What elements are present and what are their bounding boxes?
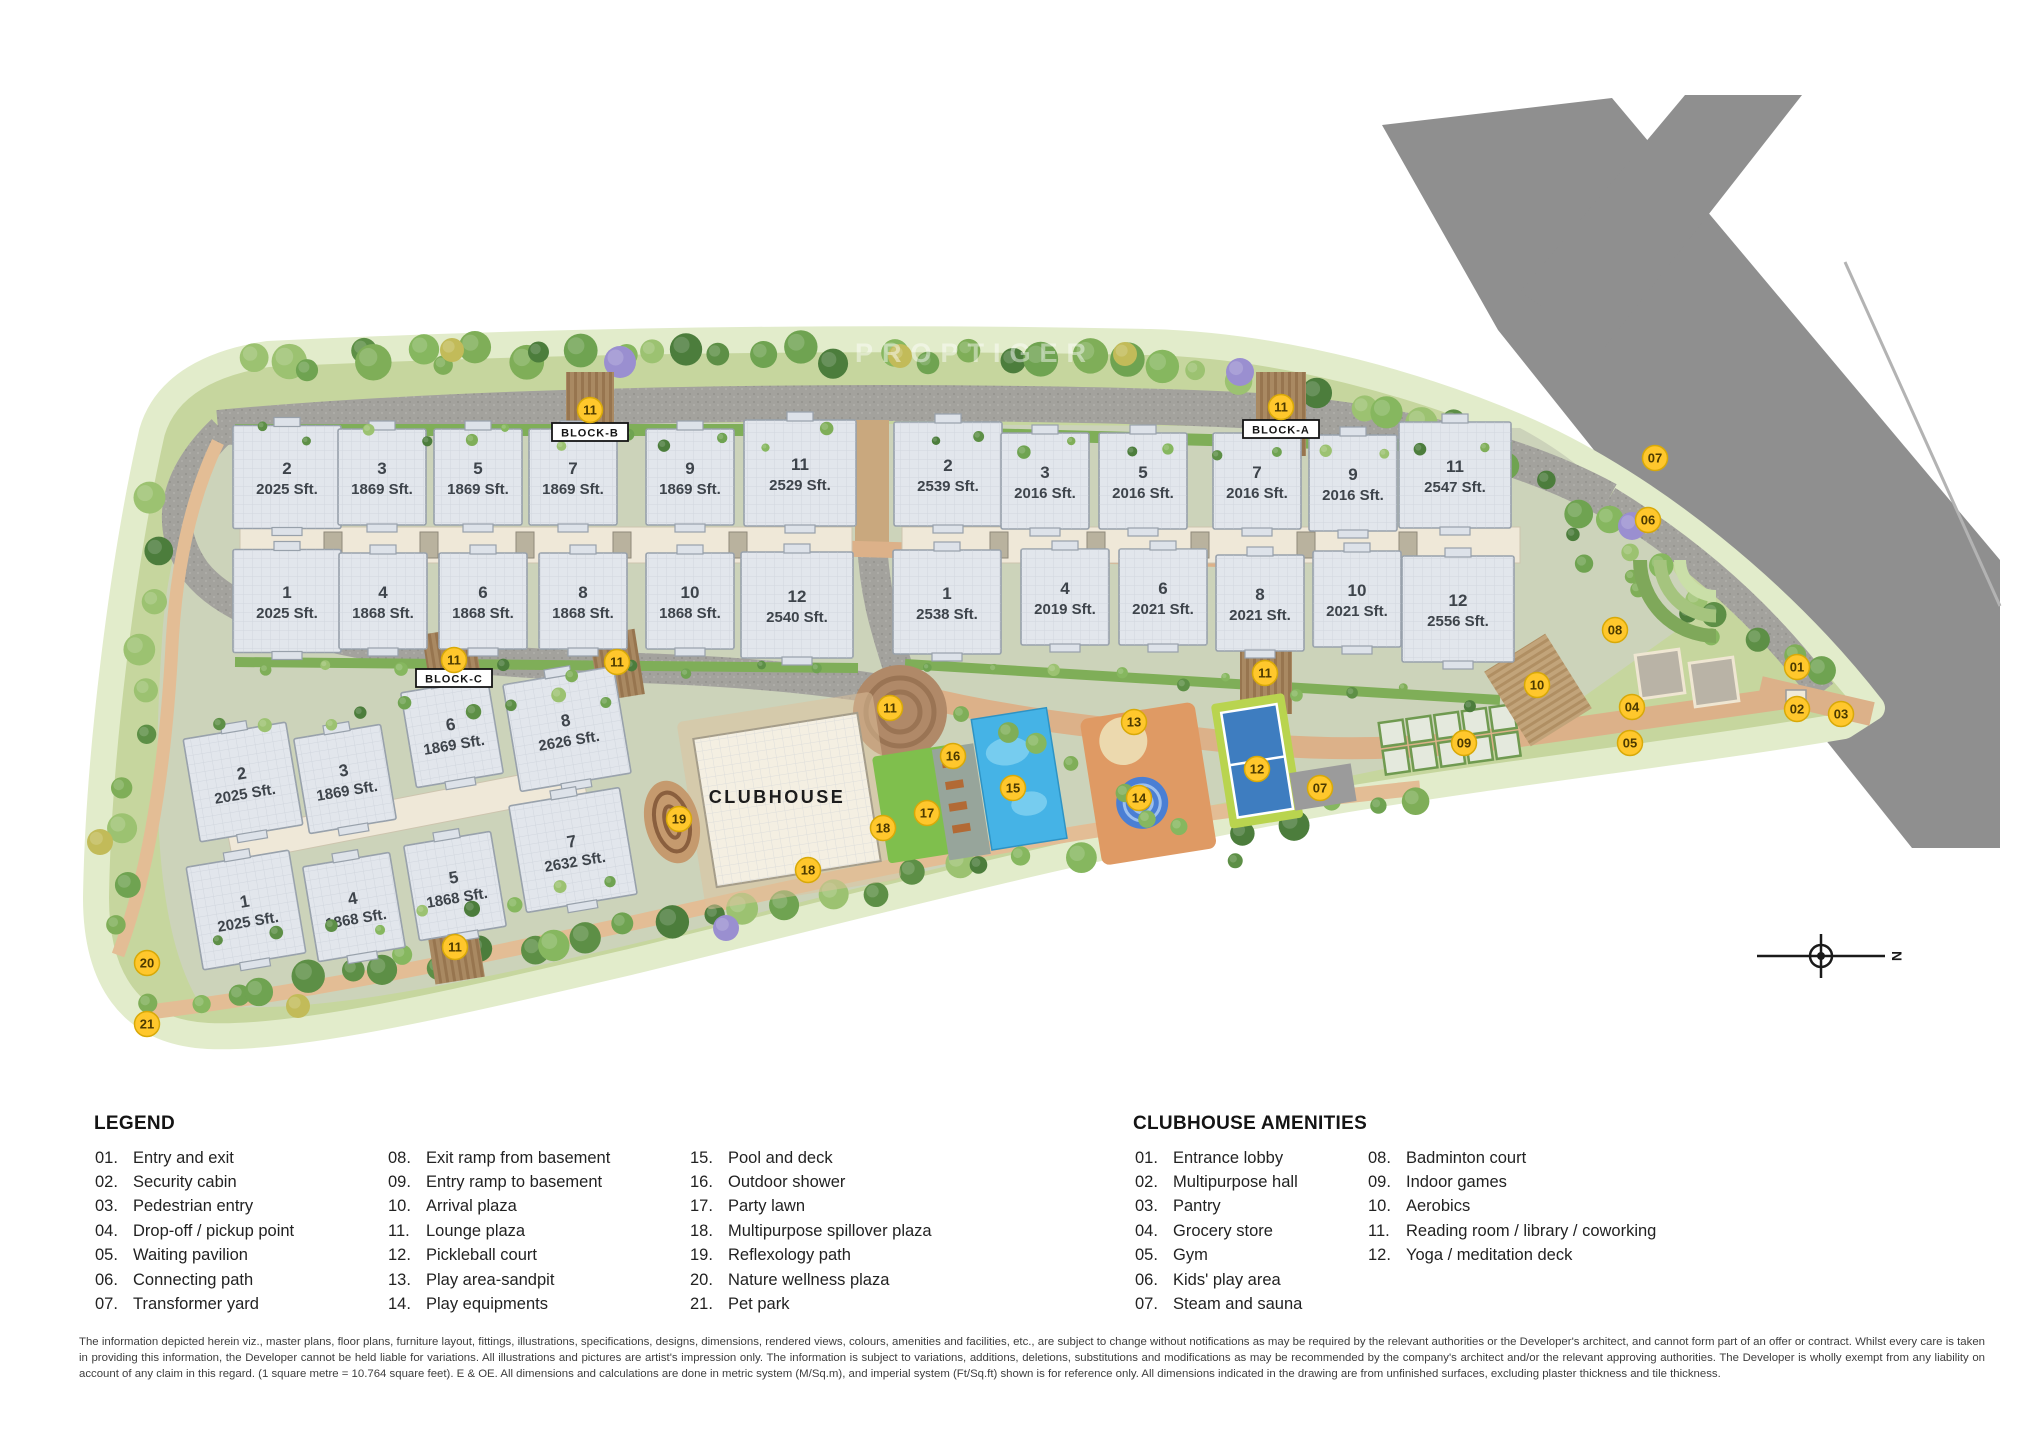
svg-text:16: 16 xyxy=(946,749,960,764)
svg-text:4: 4 xyxy=(378,583,388,602)
legend-item-05: 05.Waiting pavilion xyxy=(95,1244,294,1268)
svg-text:06: 06 xyxy=(1641,513,1655,528)
building-block_a-5: 52016 Sft. xyxy=(1099,425,1187,536)
svg-text:5: 5 xyxy=(473,459,482,478)
legend-item-13: 13.Play area-sandpit xyxy=(388,1268,610,1292)
site-plan: 22025 Sft.31869 Sft.51869 Sft.71869 Sft.… xyxy=(0,0,2025,1432)
marker-07: 07 xyxy=(1308,776,1333,801)
legend-item-09: 09.Entry ramp to basement xyxy=(388,1170,610,1194)
legend-item-04: 04.Grocery store xyxy=(1135,1219,1302,1243)
building-block_a-3: 32016 Sft. xyxy=(1001,425,1089,536)
legend-item-04: 04.Drop-off / pickup point xyxy=(95,1219,294,1243)
svg-text:7: 7 xyxy=(568,459,577,478)
plaza-tile-1 xyxy=(1635,649,1685,699)
svg-text:1869 Sft.: 1869 Sft. xyxy=(351,481,413,498)
legend-item-21: 21.Pet park xyxy=(690,1292,932,1316)
svg-text:04: 04 xyxy=(1625,700,1640,715)
marker-19: 19 xyxy=(667,807,692,832)
marker-17: 17 xyxy=(915,801,940,826)
svg-text:11: 11 xyxy=(610,655,624,670)
svg-text:2016 Sft.: 2016 Sft. xyxy=(1322,487,1384,504)
building-block_b-2: 22025 Sft. xyxy=(233,418,341,536)
svg-text:12: 12 xyxy=(1250,762,1264,777)
legend-item-10: 10.Arrival plaza xyxy=(388,1195,610,1219)
marker-13: 13 xyxy=(1122,710,1147,735)
building-block_b-4: 41868 Sft. xyxy=(339,545,427,656)
compass-north-label: N xyxy=(1889,951,1905,961)
svg-text:09: 09 xyxy=(1457,736,1471,751)
marker-15: 15 xyxy=(1001,776,1026,801)
legend-column-1: 01.Entry and exit02.Security cabin03.Ped… xyxy=(95,1146,294,1317)
svg-text:14: 14 xyxy=(1132,791,1147,806)
building-block_a-6: 62021 Sft. xyxy=(1119,541,1207,652)
svg-text:3: 3 xyxy=(1040,463,1049,482)
marker-03: 03 xyxy=(1829,702,1854,727)
svg-text:9: 9 xyxy=(1348,465,1357,484)
legend-item-08: 08.Exit ramp from basement xyxy=(388,1146,610,1170)
svg-text:1: 1 xyxy=(942,584,951,603)
clubhouse-amenities-column-1: 01.Entrance lobby02.Multipurpose hall03.… xyxy=(1135,1146,1302,1317)
legend-item-06: 06.Kids' play area xyxy=(1135,1268,1302,1292)
marker-11: 11 xyxy=(442,648,467,673)
legend-column-2: 08.Exit ramp from basement09.Entry ramp … xyxy=(388,1146,610,1317)
svg-text:15: 15 xyxy=(1006,781,1020,796)
building-block_b-10: 101868 Sft. xyxy=(646,545,734,656)
legend-item-14: 14.Play equipments xyxy=(388,1292,610,1316)
legend-item-10: 10.Aerobics xyxy=(1368,1195,1656,1219)
svg-text:13: 13 xyxy=(1127,715,1141,730)
marker-11: 11 xyxy=(605,650,630,675)
svg-text:10: 10 xyxy=(681,583,700,602)
svg-text:8: 8 xyxy=(1255,585,1264,604)
svg-text:03: 03 xyxy=(1834,707,1848,722)
building-block_a-11: 112547 Sft. xyxy=(1399,414,1511,535)
legend-item-03: 03.Pantry xyxy=(1135,1195,1302,1219)
svg-text:11: 11 xyxy=(448,940,462,955)
svg-text:02: 02 xyxy=(1790,702,1804,717)
svg-text:1868 Sft.: 1868 Sft. xyxy=(352,605,414,622)
svg-text:9: 9 xyxy=(685,459,694,478)
legend-item-01: 01.Entry and exit xyxy=(95,1146,294,1170)
building-block_a-10: 102021 Sft. xyxy=(1313,543,1401,654)
svg-text:2538 Sft.: 2538 Sft. xyxy=(916,606,978,623)
legend-item-20: 20.Nature wellness plaza xyxy=(690,1268,932,1292)
svg-text:2539 Sft.: 2539 Sft. xyxy=(917,478,979,495)
marker-04: 04 xyxy=(1620,695,1645,720)
legend-item-19: 19.Reflexology path xyxy=(690,1244,932,1268)
svg-text:2025 Sft.: 2025 Sft. xyxy=(256,481,318,498)
svg-text:2547 Sft.: 2547 Sft. xyxy=(1424,479,1486,496)
svg-text:18: 18 xyxy=(876,821,890,836)
marker-01: 01 xyxy=(1785,655,1810,680)
legend-item-11: 11.Lounge plaza xyxy=(388,1219,610,1243)
svg-text:11: 11 xyxy=(1446,457,1464,476)
svg-text:2556 Sft.: 2556 Sft. xyxy=(1427,613,1489,630)
marker-11: 11 xyxy=(878,696,903,721)
svg-text:BLOCK-C: BLOCK-C xyxy=(425,674,483,686)
legend-item-12: 12.Yoga / meditation deck xyxy=(1368,1244,1656,1268)
disclaimer-text: The information depicted herein viz., ma… xyxy=(79,1335,1985,1383)
watermark: PROPTIGER xyxy=(855,338,1095,368)
legend-item-11: 11.Reading room / library / coworking xyxy=(1368,1219,1656,1243)
marker-11: 11 xyxy=(1269,395,1294,420)
building-block_b-12: 122540 Sft. xyxy=(741,544,853,665)
svg-text:2016 Sft.: 2016 Sft. xyxy=(1014,485,1076,502)
legend-item-07: 07.Steam and sauna xyxy=(1135,1292,1302,1316)
marker-20: 20 xyxy=(135,951,160,976)
svg-text:10: 10 xyxy=(1530,678,1544,693)
building-block_a-9: 92016 Sft. xyxy=(1309,427,1397,538)
svg-text:6: 6 xyxy=(478,583,487,602)
svg-text:19: 19 xyxy=(672,812,686,827)
legend-item-15: 15.Pool and deck xyxy=(690,1146,932,1170)
svg-text:12: 12 xyxy=(788,587,807,606)
svg-text:11: 11 xyxy=(883,701,897,716)
marker-14: 14 xyxy=(1127,786,1152,811)
legend-title: LEGEND xyxy=(94,1113,175,1135)
svg-text:07: 07 xyxy=(1648,451,1662,466)
marker-08: 08 xyxy=(1603,618,1628,643)
svg-text:2021 Sft.: 2021 Sft. xyxy=(1132,601,1194,618)
svg-text:2025 Sft.: 2025 Sft. xyxy=(256,605,318,622)
legend-item-06: 06.Connecting path xyxy=(95,1268,294,1292)
svg-text:2019 Sft.: 2019 Sft. xyxy=(1034,601,1096,618)
building-block_b-5: 51869 Sft. xyxy=(434,421,522,532)
marker-09: 09 xyxy=(1452,731,1477,756)
legend-item-02: 02.Security cabin xyxy=(95,1170,294,1194)
svg-text:7: 7 xyxy=(1252,463,1261,482)
building-block_a-12: 122556 Sft. xyxy=(1402,548,1514,669)
svg-text:1868 Sft.: 1868 Sft. xyxy=(659,605,721,622)
svg-text:BLOCK-A: BLOCK-A xyxy=(1252,425,1310,437)
marker-10: 10 xyxy=(1525,673,1550,698)
block-sign-block-a: BLOCK-A xyxy=(1243,420,1319,438)
svg-text:BLOCK-B: BLOCK-B xyxy=(561,428,619,440)
svg-text:1869 Sft.: 1869 Sft. xyxy=(447,481,509,498)
svg-text:2: 2 xyxy=(282,459,291,478)
clubhouse-label: CLUBHOUSE xyxy=(709,787,846,807)
svg-text:20: 20 xyxy=(140,956,154,971)
marker-16: 16 xyxy=(941,744,966,769)
clubhouse-amenities-title: CLUBHOUSE AMENITIES xyxy=(1133,1113,1367,1135)
svg-text:6: 6 xyxy=(1158,579,1167,598)
legend-item-09: 09.Indoor games xyxy=(1368,1170,1656,1194)
legend-item-02: 02.Multipurpose hall xyxy=(1135,1170,1302,1194)
svg-text:1868 Sft.: 1868 Sft. xyxy=(552,605,614,622)
marker-18: 18 xyxy=(871,816,896,841)
svg-text:05: 05 xyxy=(1623,736,1637,751)
svg-text:21: 21 xyxy=(140,1017,154,1032)
svg-text:2021 Sft.: 2021 Sft. xyxy=(1326,603,1388,620)
svg-text:18: 18 xyxy=(801,863,815,878)
svg-text:4: 4 xyxy=(1060,579,1070,598)
svg-text:2016 Sft.: 2016 Sft. xyxy=(1226,485,1288,502)
building-block_a-7: 72016 Sft. xyxy=(1213,425,1301,536)
marker-05: 05 xyxy=(1618,731,1643,756)
marker-07: 07 xyxy=(1643,446,1668,471)
svg-text:1869 Sft.: 1869 Sft. xyxy=(542,481,604,498)
compass: N xyxy=(1757,934,1905,978)
legend-item-16: 16.Outdoor shower xyxy=(690,1170,932,1194)
marker-11: 11 xyxy=(1253,661,1278,686)
svg-text:2021 Sft.: 2021 Sft. xyxy=(1229,607,1291,624)
svg-text:11: 11 xyxy=(1274,400,1288,415)
svg-text:1869 Sft.: 1869 Sft. xyxy=(659,481,721,498)
building-block_b-3: 31869 Sft. xyxy=(338,421,426,532)
marker-11: 11 xyxy=(578,398,603,423)
plaza-tile-2 xyxy=(1689,657,1739,707)
marker-21: 21 xyxy=(135,1012,160,1037)
svg-text:17: 17 xyxy=(920,806,934,821)
legend-item-17: 17.Party lawn xyxy=(690,1195,932,1219)
svg-text:10: 10 xyxy=(1348,581,1367,600)
marker-06: 06 xyxy=(1636,508,1661,533)
building-block_b-1: 12025 Sft. xyxy=(233,542,341,660)
legend-item-08: 08.Badminton court xyxy=(1368,1146,1656,1170)
master-plan-page: 22025 Sft.31869 Sft.51869 Sft.71869 Sft.… xyxy=(0,0,2025,1432)
svg-text:11: 11 xyxy=(583,403,597,418)
legend-item-01: 01.Entrance lobby xyxy=(1135,1146,1302,1170)
svg-text:2016 Sft.: 2016 Sft. xyxy=(1112,485,1174,502)
play-area xyxy=(1079,702,1217,866)
building-block_a-1: 12538 Sft. xyxy=(893,542,1001,661)
legend-item-03: 03.Pedestrian entry xyxy=(95,1195,294,1219)
building-block_b-8: 81868 Sft. xyxy=(539,545,627,656)
clubhouse-amenities-column-2: 08.Badminton court09.Indoor games10.Aero… xyxy=(1368,1146,1656,1268)
legend-item-05: 05.Gym xyxy=(1135,1244,1302,1268)
building-block_a-8: 82021 Sft. xyxy=(1216,547,1304,658)
svg-text:11: 11 xyxy=(1258,666,1272,681)
svg-text:3: 3 xyxy=(377,459,386,478)
legend-item-07: 07.Transformer yard xyxy=(95,1292,294,1316)
svg-text:5: 5 xyxy=(1138,463,1147,482)
svg-text:11: 11 xyxy=(791,455,809,474)
svg-text:2: 2 xyxy=(943,456,952,475)
marker-18: 18 xyxy=(796,858,821,883)
svg-text:2540 Sft.: 2540 Sft. xyxy=(766,609,828,626)
building-block_a-2: 22539 Sft. xyxy=(894,414,1002,533)
marker-11: 11 xyxy=(443,935,468,960)
block-sign-block-b: BLOCK-B xyxy=(552,423,628,441)
legend-column-3: 15.Pool and deck16.Outdoor shower17.Part… xyxy=(690,1146,932,1317)
svg-text:2529 Sft.: 2529 Sft. xyxy=(769,477,831,494)
svg-text:1868 Sft.: 1868 Sft. xyxy=(452,605,514,622)
svg-text:07: 07 xyxy=(1313,781,1327,796)
svg-text:1: 1 xyxy=(282,583,291,602)
legend-item-12: 12.Pickleball court xyxy=(388,1244,610,1268)
building-block_a-4: 42019 Sft. xyxy=(1021,541,1109,652)
svg-text:08: 08 xyxy=(1608,623,1622,638)
svg-text:12: 12 xyxy=(1449,591,1468,610)
legend-item-18: 18.Multipurpose spillover plaza xyxy=(690,1219,932,1243)
marker-12: 12 xyxy=(1245,757,1270,782)
building-block_b-6: 61868 Sft. xyxy=(439,545,527,656)
building-block_b-11: 112529 Sft. xyxy=(744,412,856,533)
svg-text:8: 8 xyxy=(578,583,587,602)
svg-text:01: 01 xyxy=(1790,660,1804,675)
marker-02: 02 xyxy=(1785,697,1810,722)
svg-text:11: 11 xyxy=(447,653,461,668)
